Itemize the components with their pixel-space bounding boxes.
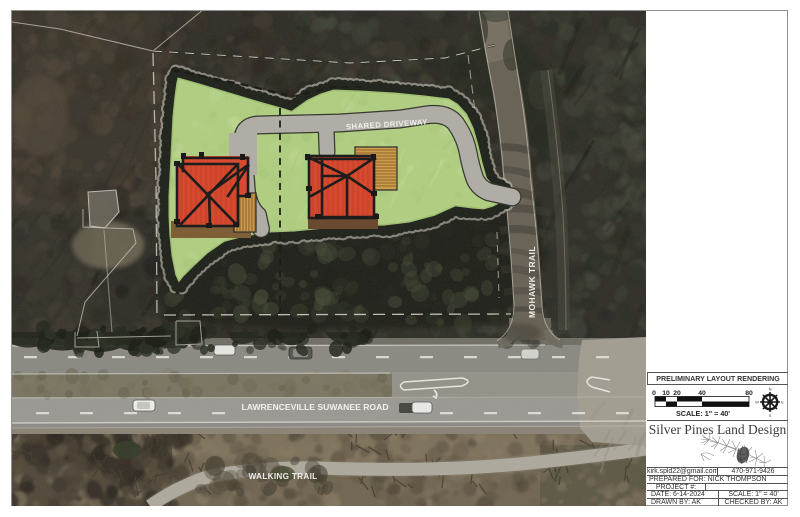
svg-text:0: 0 <box>652 390 656 397</box>
svg-text:20: 20 <box>673 390 681 397</box>
svg-text:N: N <box>769 387 772 392</box>
svg-text:E: E <box>781 400 784 405</box>
svg-text:S: S <box>769 413 772 418</box>
svg-text:80: 80 <box>745 390 753 397</box>
svg-text:40: 40 <box>698 390 706 397</box>
svg-text:W: W <box>755 400 759 405</box>
svg-text:10: 10 <box>662 390 670 397</box>
svg-text:SCALE: 1" = 40': SCALE: 1" = 40' <box>676 409 730 418</box>
